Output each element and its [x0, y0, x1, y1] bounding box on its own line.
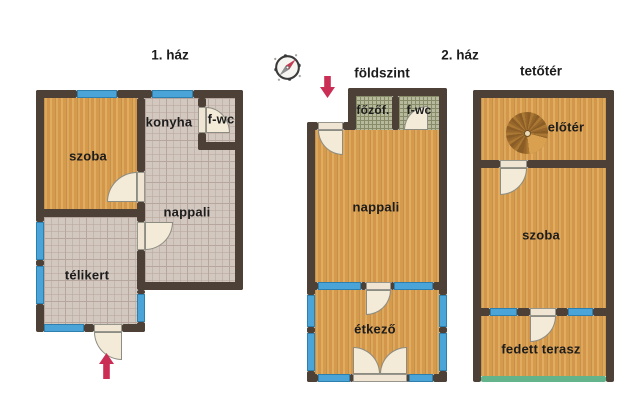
wall	[122, 324, 145, 332]
window	[307, 333, 315, 371]
wall	[392, 96, 399, 130]
wall	[307, 374, 318, 382]
terrace-open-edge	[481, 376, 606, 382]
wall	[235, 90, 243, 290]
wall	[307, 122, 315, 295]
door-leaf	[500, 160, 527, 168]
room-label-telikert: télikert	[65, 268, 109, 283]
room-label-nappali-house2: nappali	[353, 200, 400, 215]
wall	[556, 308, 568, 316]
window	[77, 90, 117, 98]
spiral-staircase-icon	[506, 112, 548, 154]
double-door-leaf	[353, 374, 407, 382]
door-leaf	[530, 308, 556, 316]
room-label-fwc-house2: f-wc	[407, 103, 432, 117]
room-label-konyha: konyha	[146, 115, 193, 130]
window	[439, 333, 447, 371]
window	[409, 374, 433, 382]
wall	[473, 90, 481, 382]
wall	[433, 282, 447, 290]
wall	[439, 88, 447, 295]
wall	[307, 282, 318, 290]
wall	[343, 122, 356, 130]
wall	[307, 122, 318, 130]
wall	[473, 90, 614, 98]
room-label-fozofulke: főzőf.	[356, 103, 389, 117]
door-leaf	[366, 282, 391, 290]
wall	[36, 209, 145, 217]
door-leaf	[137, 172, 145, 202]
window	[36, 266, 44, 304]
wall	[348, 88, 447, 96]
wall	[517, 308, 530, 316]
window	[439, 295, 447, 327]
door-leaf	[137, 222, 145, 250]
wall	[473, 308, 490, 316]
window	[137, 294, 145, 322]
window	[36, 222, 44, 260]
arrow-down-icon	[320, 76, 335, 98]
window	[490, 308, 517, 316]
wall	[36, 304, 44, 332]
wall	[606, 90, 614, 382]
attic-title: tetőtér	[520, 64, 562, 79]
ground-floor-title: földszint	[354, 66, 410, 81]
window	[44, 324, 84, 332]
room-label-nappali: nappali	[164, 205, 211, 220]
room-label-etkezo: étkező	[354, 322, 396, 337]
window	[318, 282, 361, 290]
arrow-up-icon	[99, 353, 114, 379]
room-label-fedett-terasz: fedett terasz	[501, 342, 580, 357]
wall	[84, 324, 94, 332]
entrance-door-leaf	[318, 122, 343, 130]
wall	[198, 98, 206, 107]
floor-plan-canvas: 1. ház szoba konyha f-wc nappali téliker…	[0, 0, 640, 410]
room-label-fwc: f-wc	[208, 112, 235, 127]
wall	[473, 160, 500, 168]
door-leaf	[94, 324, 122, 332]
window	[394, 282, 433, 290]
house1-title: 1. ház	[151, 48, 189, 63]
wall	[36, 90, 44, 222]
wall	[137, 202, 145, 222]
wall	[137, 282, 243, 290]
wall	[433, 374, 447, 382]
window	[318, 374, 350, 382]
wall	[527, 160, 614, 168]
window	[568, 308, 593, 316]
window	[307, 295, 315, 327]
room-label-szoba-attic: szoba	[522, 228, 560, 243]
wall	[117, 90, 152, 98]
window	[152, 90, 193, 98]
wall	[137, 250, 145, 290]
room-label-eloter: előtér	[548, 120, 585, 135]
wall	[137, 98, 145, 172]
door-leaf	[198, 107, 206, 133]
wall	[593, 308, 614, 316]
house2-title: 2. ház	[441, 48, 479, 63]
staircase-center-post	[524, 130, 531, 137]
wall	[198, 142, 243, 150]
compass-icon	[271, 51, 304, 84]
room-label-szoba: szoba	[69, 149, 107, 164]
